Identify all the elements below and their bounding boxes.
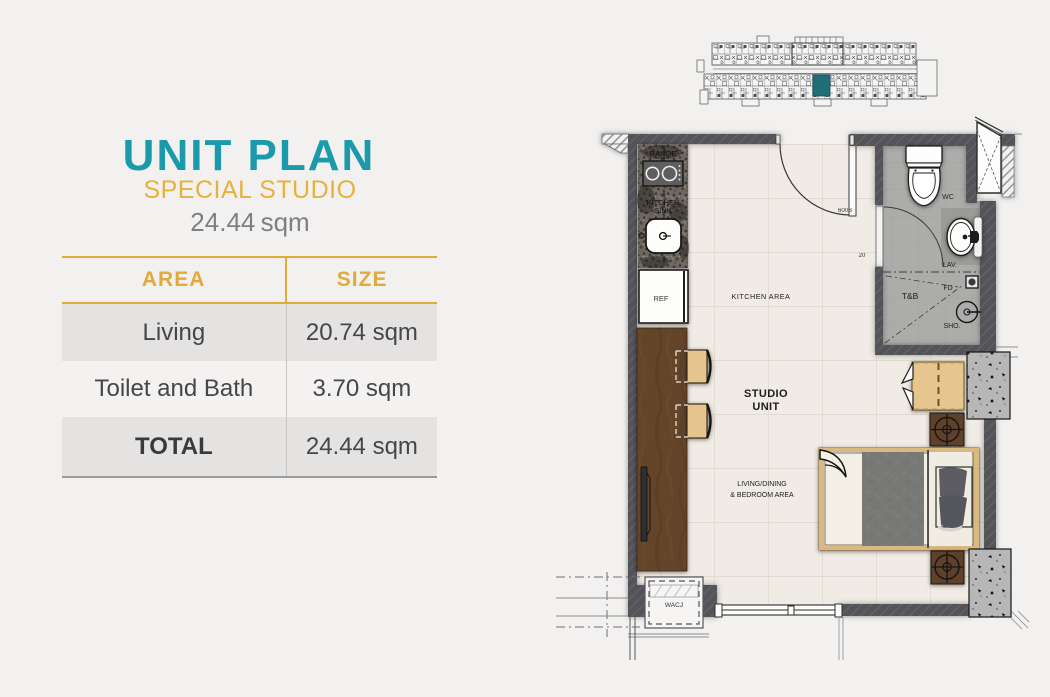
svg-text:WC: WC	[942, 194, 954, 201]
svg-text:RANGE: RANGE	[650, 149, 677, 158]
svg-text:20: 20	[859, 253, 866, 259]
svg-text:SINK: SINK	[654, 206, 672, 215]
svg-text:REF: REF	[654, 294, 669, 303]
svg-text:KITCHEN AREA: KITCHEN AREA	[732, 292, 791, 301]
svg-text:STUDIO: STUDIO	[744, 388, 788, 400]
svg-text:T&B: T&B	[902, 291, 919, 301]
svg-text:FD: FD	[943, 285, 952, 292]
svg-text:UNIT: UNIT	[752, 401, 779, 413]
svg-text:LAV.: LAV.	[943, 262, 957, 269]
svg-text:WACJ: WACJ	[665, 602, 683, 609]
svg-text:SHO.: SHO.	[943, 323, 960, 330]
svg-text:& BEDROOM AREA: & BEDROOM AREA	[730, 492, 794, 499]
svg-text:LIVING/DINING: LIVING/DINING	[737, 481, 786, 488]
svg-text:600B: 600B	[838, 208, 852, 214]
